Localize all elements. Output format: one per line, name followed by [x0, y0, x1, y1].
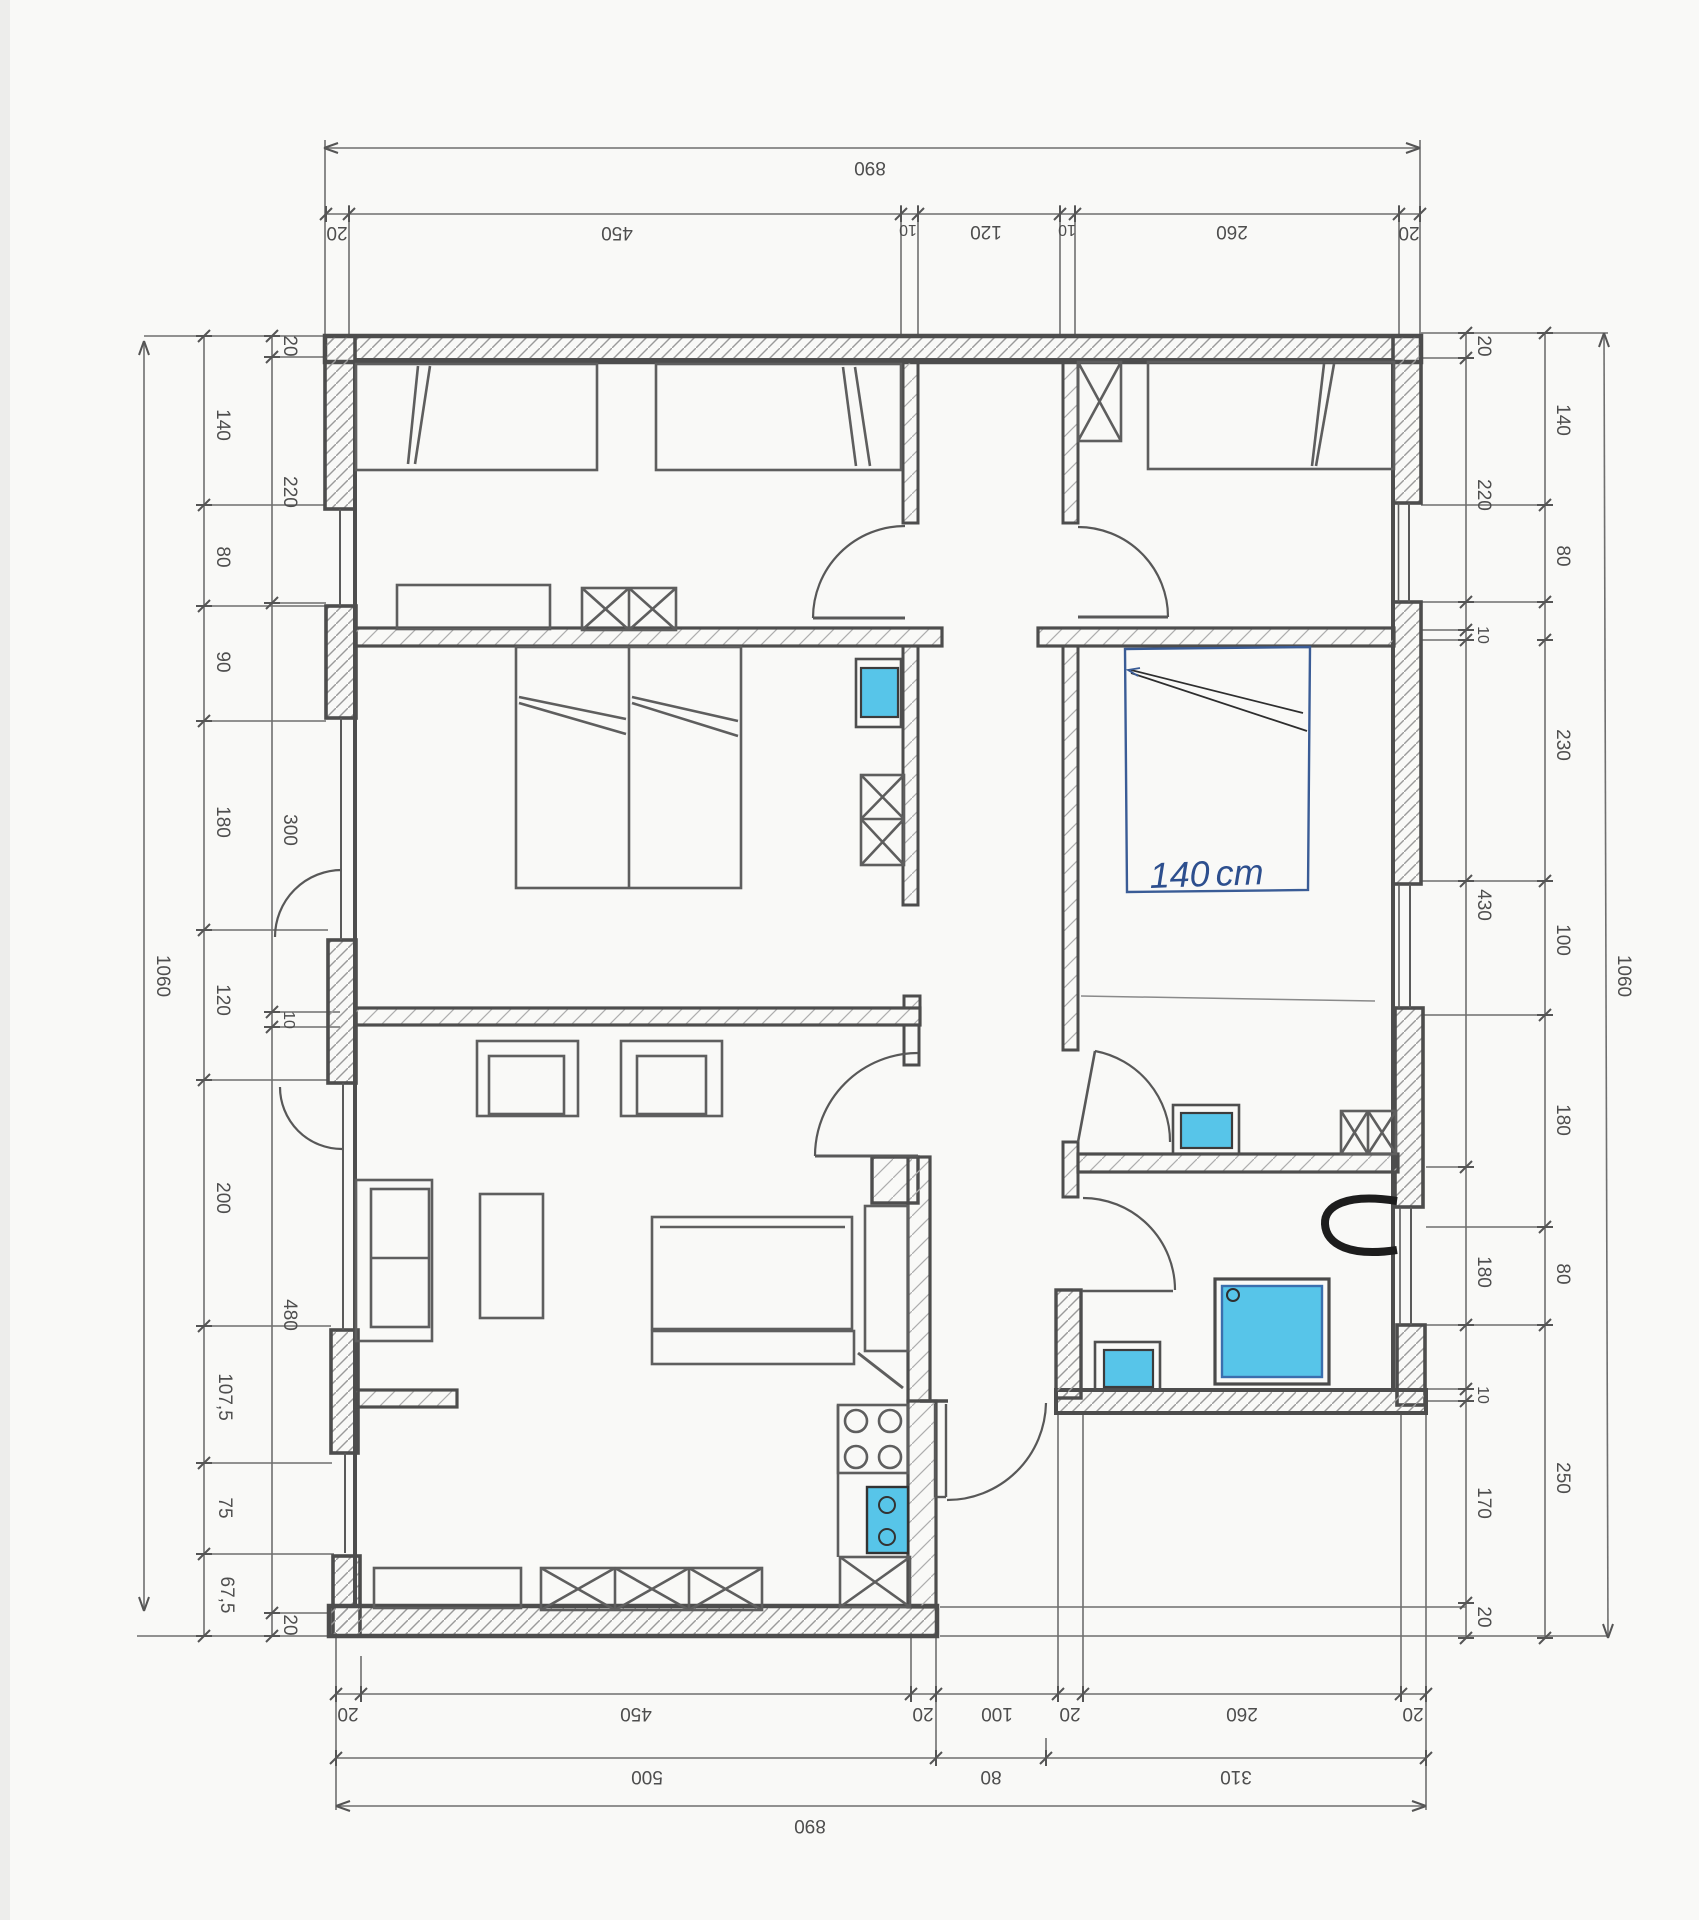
- svg-text:890: 890: [794, 1815, 826, 1836]
- svg-text:260: 260: [1226, 1703, 1258, 1724]
- svg-text:20: 20: [1398, 222, 1419, 243]
- svg-text:890: 890: [854, 157, 886, 178]
- svg-text:180: 180: [212, 806, 233, 838]
- svg-text:10: 10: [899, 221, 917, 238]
- svg-text:80: 80: [980, 1766, 1001, 1787]
- svg-text:500: 500: [631, 1766, 663, 1787]
- svg-text:480: 480: [279, 1299, 300, 1331]
- svg-text:20: 20: [1059, 1703, 1080, 1724]
- svg-text:107,5: 107,5: [214, 1373, 235, 1421]
- svg-text:310: 310: [1220, 1766, 1252, 1787]
- svg-text:100: 100: [1552, 924, 1573, 956]
- svg-text:20: 20: [326, 222, 347, 243]
- svg-text:100: 100: [981, 1703, 1013, 1724]
- svg-text:1060: 1060: [152, 955, 173, 997]
- svg-text:80: 80: [1552, 1263, 1573, 1284]
- svg-text:75: 75: [214, 1497, 235, 1518]
- svg-text:10: 10: [1474, 1386, 1491, 1404]
- svg-text:20: 20: [279, 335, 300, 356]
- svg-text:260: 260: [1216, 221, 1248, 242]
- svg-text:20: 20: [1473, 1606, 1494, 1627]
- svg-text:20: 20: [1473, 335, 1494, 356]
- svg-text:20: 20: [912, 1703, 933, 1724]
- svg-text:200: 200: [212, 1182, 233, 1214]
- svg-text:250: 250: [1552, 1462, 1573, 1494]
- svg-text:180: 180: [1473, 1256, 1494, 1288]
- svg-text:20: 20: [1402, 1703, 1423, 1724]
- svg-text:10: 10: [1474, 626, 1491, 644]
- svg-text:80: 80: [1552, 545, 1573, 566]
- svg-text:120: 120: [970, 221, 1002, 242]
- svg-text:10: 10: [280, 1011, 297, 1029]
- svg-text:140: 140: [1552, 404, 1573, 436]
- svg-text:450: 450: [601, 222, 633, 243]
- svg-text:230: 230: [1552, 729, 1573, 761]
- svg-text:10: 10: [1058, 221, 1076, 238]
- svg-text:300: 300: [279, 814, 300, 846]
- svg-text:1060: 1060: [1613, 955, 1634, 997]
- svg-text:220: 220: [279, 476, 300, 508]
- svg-text:450: 450: [620, 1703, 652, 1724]
- svg-text:220: 220: [1473, 479, 1494, 511]
- svg-text:90: 90: [212, 651, 233, 672]
- svg-text:140cm: 140cm: [1149, 851, 1264, 896]
- svg-text:170: 170: [1473, 1487, 1494, 1519]
- svg-text:80: 80: [212, 546, 233, 567]
- svg-text:20: 20: [337, 1703, 358, 1724]
- svg-text:140: 140: [212, 409, 233, 441]
- svg-text:120: 120: [212, 984, 233, 1016]
- svg-text:20: 20: [279, 1614, 300, 1635]
- svg-text:430: 430: [1473, 889, 1494, 921]
- svg-text:180: 180: [1552, 1104, 1573, 1136]
- svg-text:67,5: 67,5: [216, 1577, 237, 1614]
